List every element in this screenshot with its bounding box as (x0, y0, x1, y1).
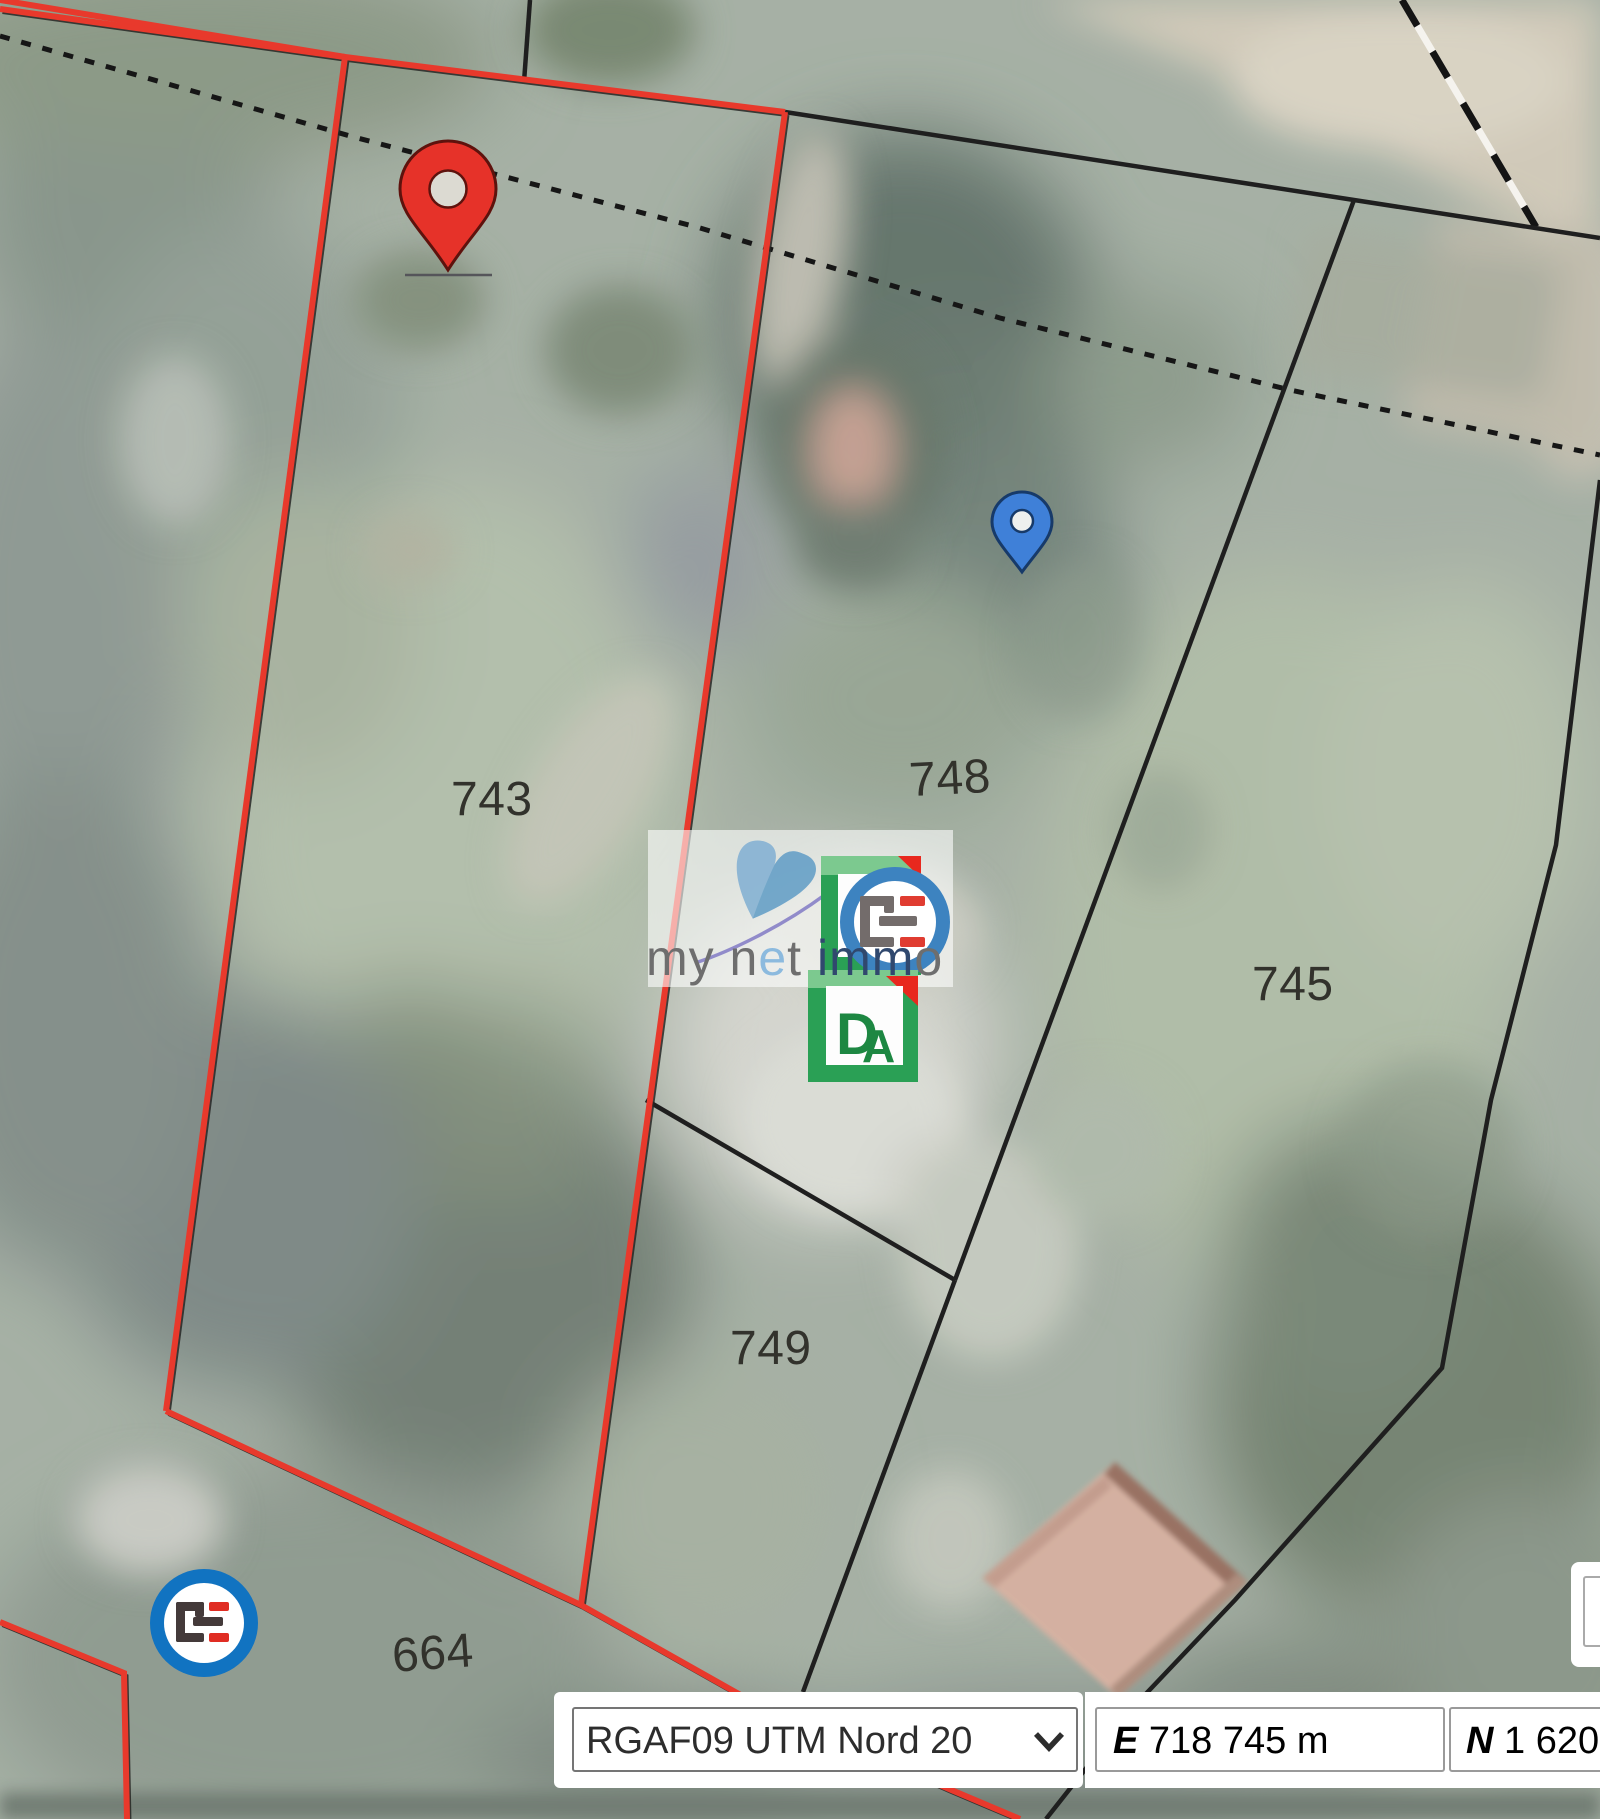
svg-text:743: 743 (451, 773, 533, 826)
svg-text:my net immo: my net immo (646, 930, 943, 986)
svg-text:664: 664 (390, 1624, 475, 1683)
svg-text:748: 748 (908, 750, 992, 807)
svg-text:745: 745 (1252, 958, 1334, 1011)
svg-text:749: 749 (730, 1322, 812, 1375)
svg-text:A: A (862, 1020, 895, 1072)
